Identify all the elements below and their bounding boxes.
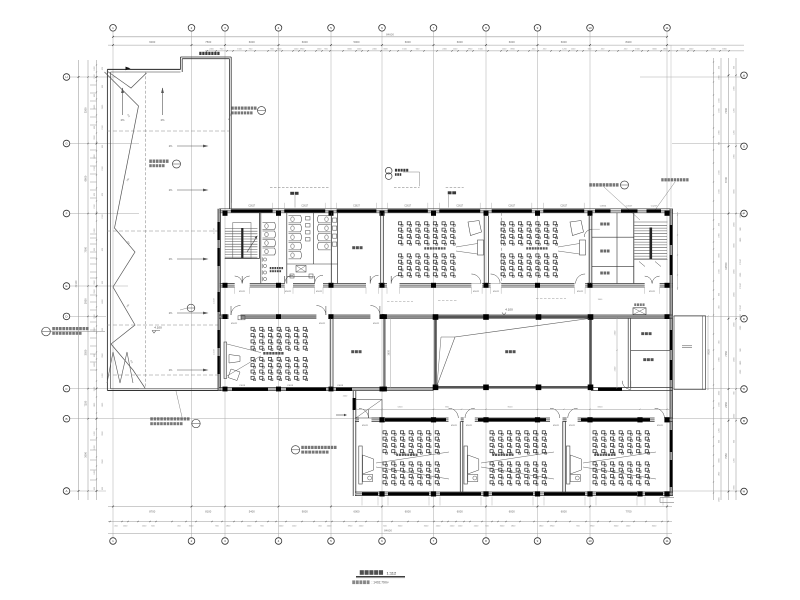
svg-text:: 1402.79m²: : 1402.79m² <box>372 581 389 585</box>
svg-text:3600: 3600 <box>387 349 390 355</box>
svg-text:M1021: M1021 <box>362 425 369 427</box>
svg-text:C1527: C1527 <box>214 348 216 355</box>
svg-text:6000: 6000 <box>561 40 567 44</box>
svg-text:6000: 6000 <box>509 509 515 513</box>
svg-text:M1022: M1022 <box>231 323 238 325</box>
svg-text:M1021: M1021 <box>553 425 560 427</box>
svg-text:11: 11 <box>665 539 668 543</box>
svg-text:9000: 9000 <box>508 407 514 409</box>
svg-text:3000: 3000 <box>84 451 88 457</box>
svg-text:C1527: C1527 <box>740 282 742 289</box>
svg-text:M1022: M1022 <box>493 291 500 293</box>
svg-text:6600: 6600 <box>84 175 88 181</box>
svg-text:B: B <box>743 419 745 423</box>
svg-text:C1527: C1527 <box>740 304 742 311</box>
svg-text:C1527: C1527 <box>740 258 742 265</box>
svg-text:6000: 6000 <box>457 40 463 44</box>
svg-text:M1021: M1021 <box>569 425 576 427</box>
svg-text:3050: 3050 <box>84 349 88 355</box>
svg-text:8100: 8100 <box>205 509 211 513</box>
svg-text:M1021: M1021 <box>657 425 664 427</box>
svg-text:M1521: M1521 <box>649 291 656 293</box>
svg-text:M1022: M1022 <box>285 291 292 293</box>
svg-text:H: H <box>743 74 745 78</box>
svg-text:A: A <box>743 490 745 494</box>
svg-text:5400: 5400 <box>249 509 255 513</box>
svg-text:10: 10 <box>588 26 592 30</box>
svg-text:M1022: M1022 <box>577 291 584 293</box>
svg-text:10550: 10550 <box>724 262 728 270</box>
svg-text:6000: 6000 <box>561 509 567 513</box>
svg-text:6000: 6000 <box>354 509 360 513</box>
svg-text:6700: 6700 <box>724 176 728 182</box>
svg-text:M1021: M1021 <box>451 425 458 427</box>
svg-text:8700: 8700 <box>149 509 155 513</box>
svg-text:C3618: C3618 <box>287 385 294 387</box>
svg-text:8400: 8400 <box>598 407 604 409</box>
svg-text:C3627: C3627 <box>560 205 567 207</box>
svg-text:84600: 84600 <box>384 529 392 533</box>
svg-text:E: E <box>65 284 67 288</box>
svg-text:6000: 6000 <box>302 40 308 44</box>
svg-text:4.100: 4.100 <box>505 308 513 312</box>
svg-text:C3627: C3627 <box>508 205 515 207</box>
svg-text:C3618: C3618 <box>337 385 344 387</box>
svg-text:5000: 5000 <box>354 40 360 44</box>
svg-text:C3627: C3627 <box>404 205 411 207</box>
svg-text:M1022: M1022 <box>316 291 323 293</box>
svg-text:C3627: C3627 <box>248 205 255 207</box>
svg-text:9000: 9000 <box>302 509 308 513</box>
svg-text:10: 10 <box>588 539 592 543</box>
svg-text:7000: 7000 <box>724 107 728 113</box>
svg-text:3300: 3300 <box>84 107 88 113</box>
svg-text:C3627: C3627 <box>353 205 360 207</box>
svg-text:7500: 7500 <box>205 40 211 44</box>
svg-text:7250: 7250 <box>84 400 88 406</box>
svg-text:6000: 6000 <box>457 509 463 513</box>
svg-text:5400: 5400 <box>398 407 404 409</box>
svg-text:7950: 7950 <box>724 453 728 459</box>
svg-text:C1527: C1527 <box>214 297 216 304</box>
svg-text:M1521: M1521 <box>239 291 246 293</box>
svg-text:C1227: C1227 <box>651 205 658 207</box>
svg-text:C3627: C3627 <box>456 205 463 207</box>
svg-text:6000: 6000 <box>405 40 411 44</box>
svg-text:6000: 6000 <box>149 40 155 44</box>
svg-text:M1022: M1022 <box>373 323 380 325</box>
svg-text:4.100: 4.100 <box>154 326 162 330</box>
svg-text:M1022: M1022 <box>319 323 326 325</box>
svg-text:C3627: C3627 <box>301 205 308 207</box>
svg-text:2950: 2950 <box>84 298 88 304</box>
svg-text:C3618: C3618 <box>239 385 246 387</box>
svg-text:6000: 6000 <box>405 509 411 513</box>
svg-text:6000: 6000 <box>509 40 515 44</box>
svg-text:F: F <box>66 212 68 216</box>
svg-text:H: H <box>65 75 67 79</box>
svg-text:1:112: 1:112 <box>387 570 397 575</box>
svg-text:M1022: M1022 <box>473 291 480 293</box>
svg-text:7700: 7700 <box>626 509 632 513</box>
svg-text:C1527: C1527 <box>214 227 216 234</box>
svg-text:C1527: C1527 <box>626 205 633 207</box>
svg-text:42100: 42100 <box>75 280 78 287</box>
svg-text:84600: 84600 <box>386 32 394 36</box>
svg-text:F: F <box>743 212 745 216</box>
svg-text:7050: 7050 <box>724 350 728 356</box>
svg-text:A: A <box>65 489 67 493</box>
svg-text:11: 11 <box>665 26 668 30</box>
svg-text:8400: 8400 <box>626 40 632 44</box>
svg-text:C0924: C0924 <box>600 205 607 207</box>
svg-text:M1021: M1021 <box>466 425 473 427</box>
svg-text:6000: 6000 <box>249 40 255 44</box>
svg-text:7000: 7000 <box>84 246 88 252</box>
svg-text:B: B <box>65 417 67 421</box>
svg-text:2350: 2350 <box>724 401 728 407</box>
